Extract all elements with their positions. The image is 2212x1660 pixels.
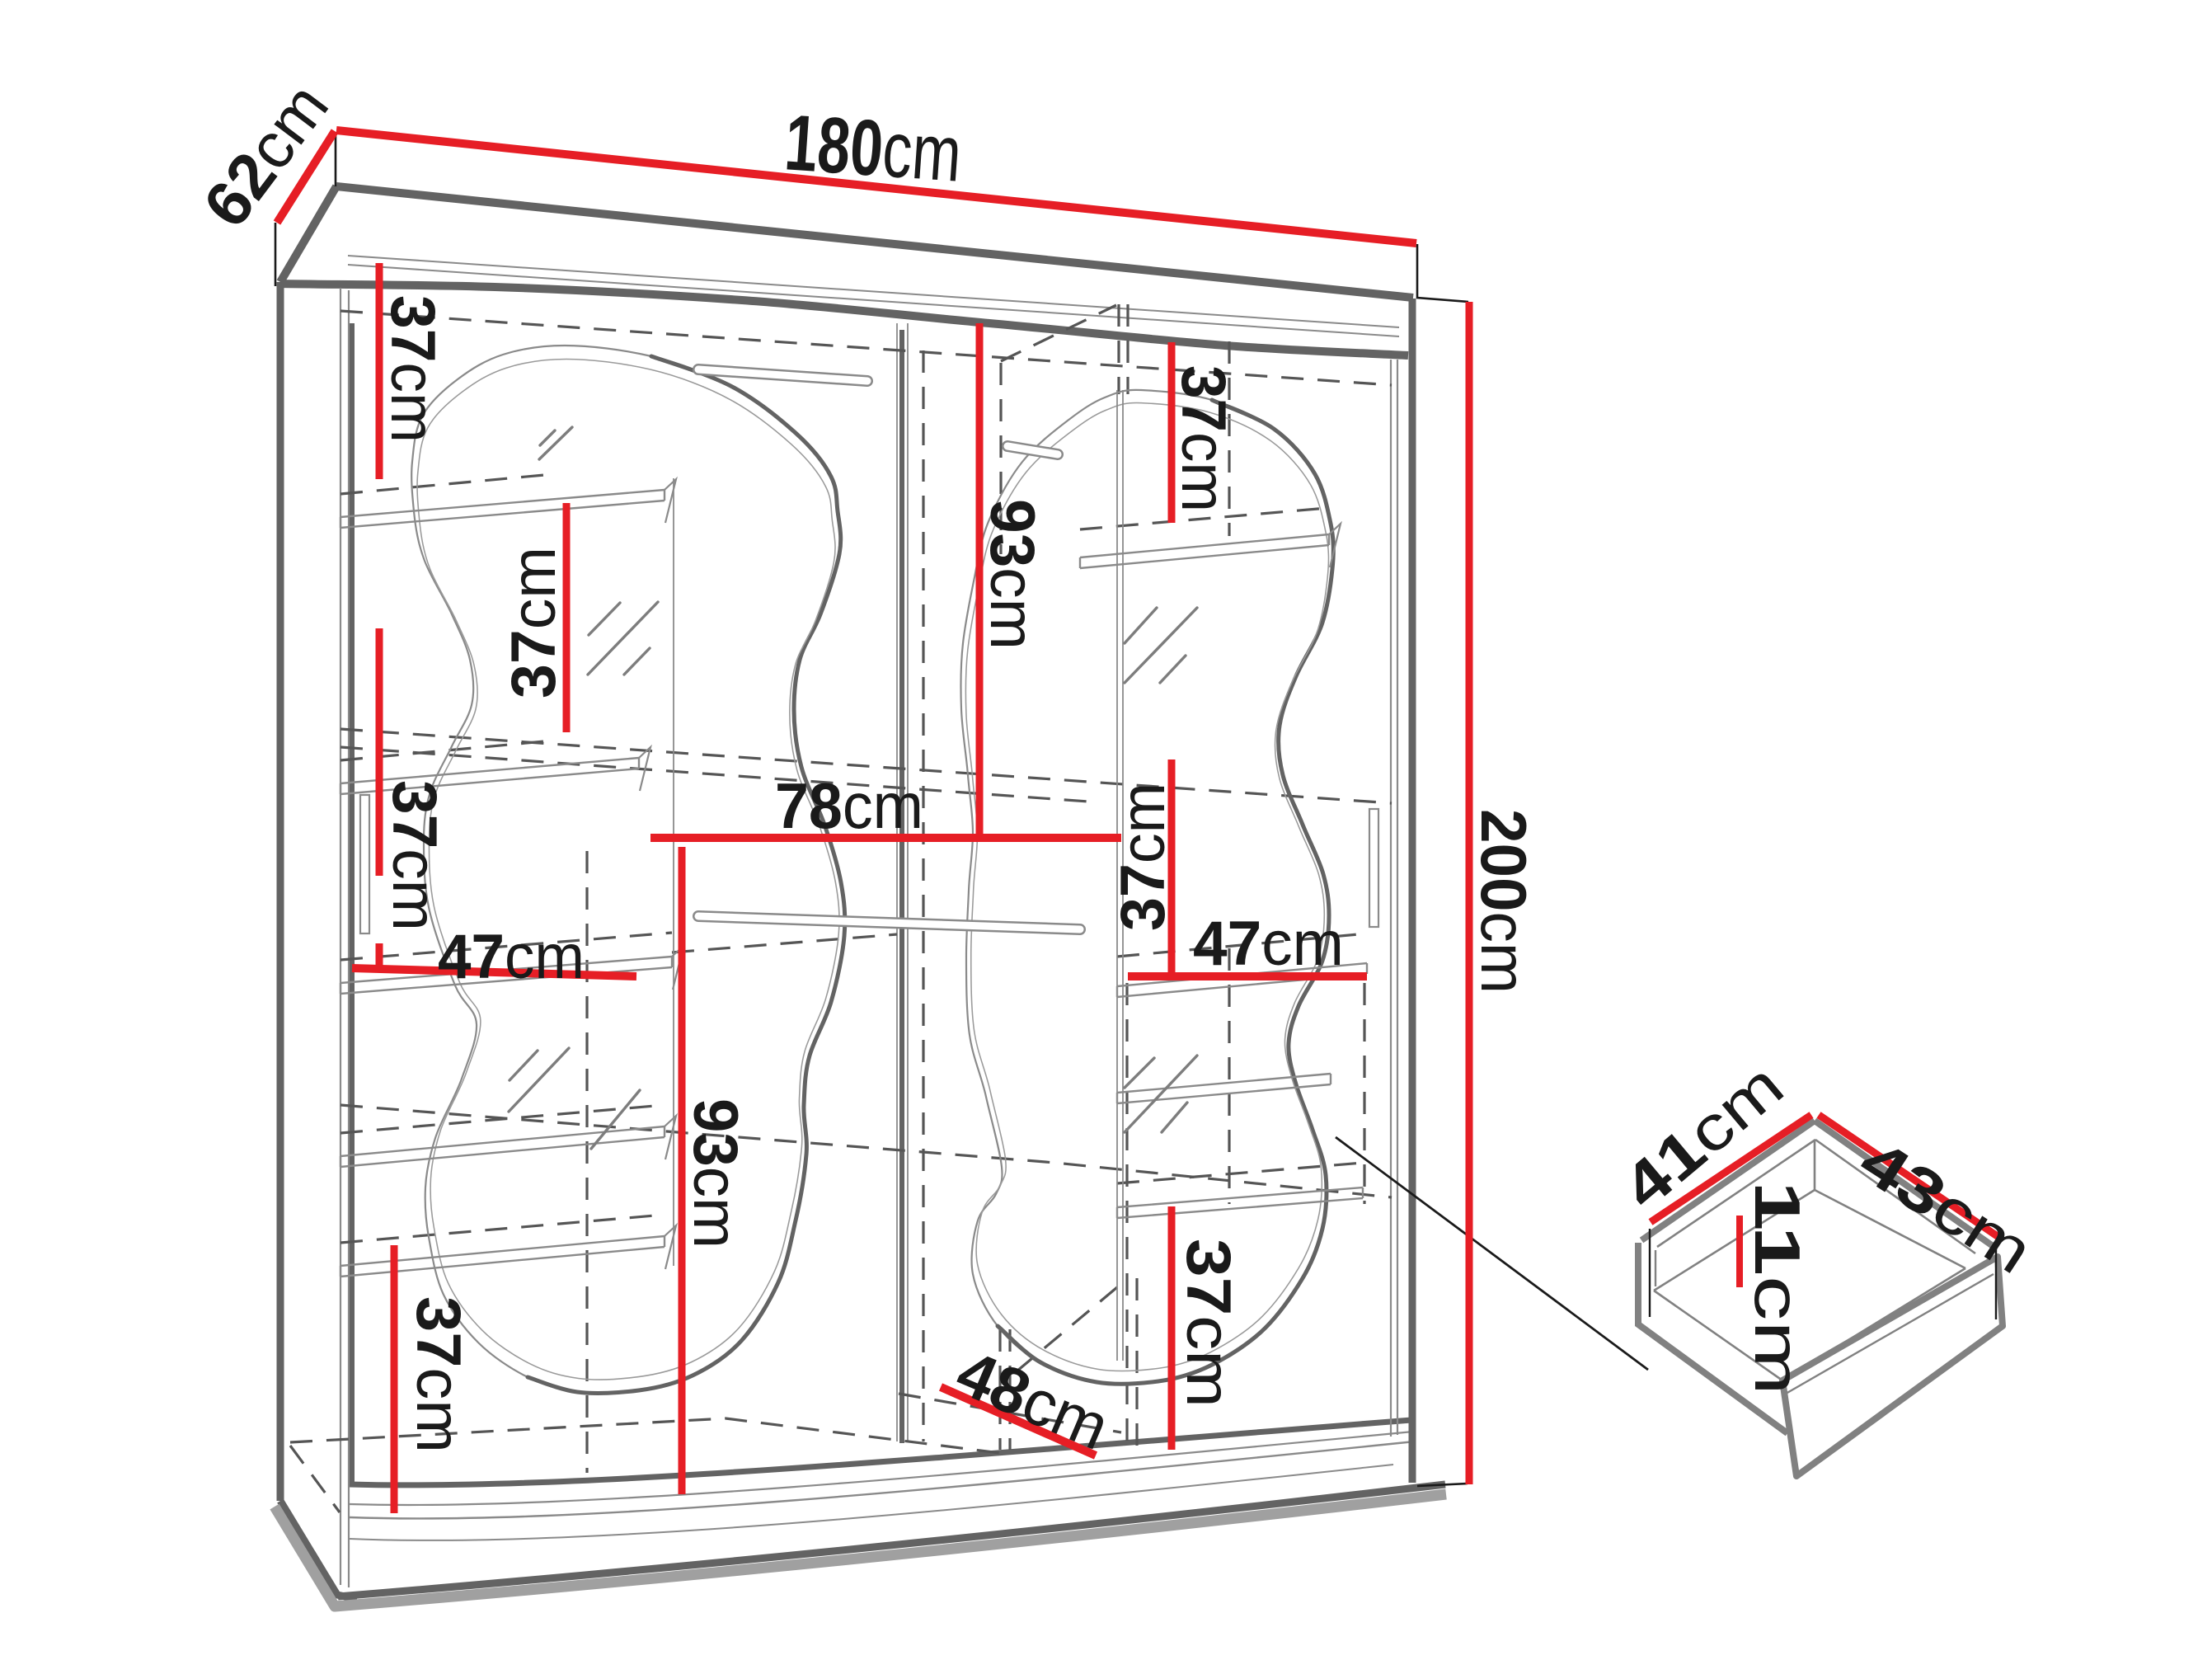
svg-text:78cm: 78cm [775, 769, 923, 842]
svg-text:37cm: 37cm [1108, 783, 1178, 931]
svg-text:47cm: 47cm [1193, 909, 1344, 979]
svg-text:180cm: 180cm [782, 98, 965, 199]
svg-text:37cm: 37cm [378, 295, 448, 443]
svg-text:37cm: 37cm [1173, 1239, 1243, 1408]
svg-text:37cm: 37cm [1168, 365, 1238, 512]
svg-text:11cm: 11cm [1741, 1181, 1814, 1395]
svg-text:93cm: 93cm [680, 1098, 750, 1249]
svg-text:47cm: 47cm [438, 922, 585, 992]
svg-text:37cm: 37cm [379, 780, 449, 931]
svg-text:200cm: 200cm [1468, 809, 1540, 994]
svg-text:37cm: 37cm [499, 547, 569, 698]
svg-text:37cm: 37cm [403, 1296, 473, 1453]
svg-text:93cm: 93cm [977, 499, 1047, 650]
